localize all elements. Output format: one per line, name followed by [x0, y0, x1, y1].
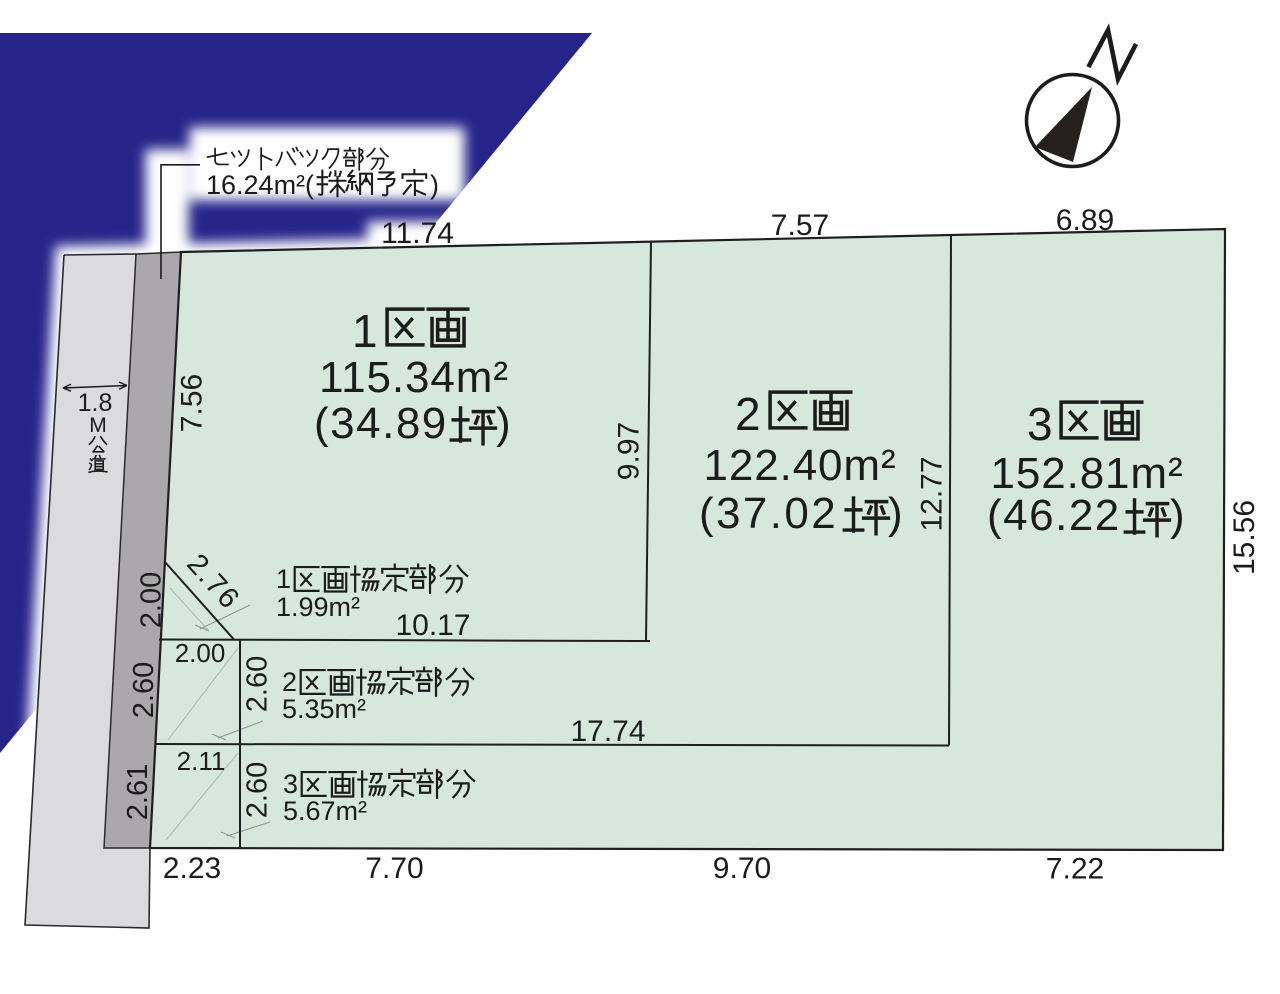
svg-text:3: 3: [283, 769, 298, 799]
svg-text:7.56: 7.56: [176, 374, 209, 432]
svg-text:2.60: 2.60: [242, 762, 274, 818]
svg-text:1.99m²: 1.99m²: [276, 592, 360, 622]
svg-text:7.22: 7.22: [1046, 853, 1104, 886]
svg-text:2: 2: [282, 667, 297, 697]
svg-text:2.60: 2.60: [128, 662, 160, 718]
svg-text:6.89: 6.89: [1056, 204, 1114, 237]
svg-text:2: 2: [735, 388, 761, 440]
svg-text:(37.02: (37.02: [699, 489, 838, 538]
svg-text:1: 1: [276, 564, 291, 594]
svg-text:1: 1: [352, 305, 378, 357]
svg-text:(46.22: (46.22: [987, 491, 1121, 540]
svg-text:17.74: 17.74: [570, 715, 645, 748]
svg-text:2.00: 2.00: [136, 572, 168, 628]
svg-text:7.57: 7.57: [771, 209, 829, 242]
svg-text:): ): [888, 489, 903, 538]
svg-text:): ): [1170, 491, 1185, 540]
svg-text:11.74: 11.74: [381, 217, 454, 250]
svg-text:2.00: 2.00: [175, 638, 226, 668]
svg-text:3: 3: [1027, 398, 1053, 450]
svg-text:2.11: 2.11: [177, 746, 226, 776]
svg-text:2.23: 2.23: [163, 852, 221, 885]
svg-text:115.34m²: 115.34m²: [319, 353, 509, 402]
svg-text:): ): [430, 170, 439, 200]
svg-text:7.70: 7.70: [365, 852, 423, 885]
svg-text:16.24m²(: 16.24m²(: [206, 170, 314, 200]
svg-text:2.60: 2.60: [242, 656, 274, 712]
svg-text:122.40m²: 122.40m²: [703, 441, 896, 490]
svg-text:M: M: [89, 414, 107, 437]
svg-text:5.67m²: 5.67m²: [283, 796, 367, 826]
svg-text:1.8: 1.8: [78, 389, 113, 417]
svg-text:2.61: 2.61: [122, 764, 154, 820]
svg-text:10.17: 10.17: [395, 609, 470, 642]
svg-text:(34.89: (34.89: [314, 399, 448, 448]
svg-text:9.97: 9.97: [613, 422, 646, 480]
svg-text:5.35m²: 5.35m²: [282, 694, 366, 724]
svg-text:15.56: 15.56: [1228, 500, 1261, 575]
svg-text:12.77: 12.77: [916, 456, 949, 531]
svg-text:): ): [496, 399, 511, 448]
svg-text:9.70: 9.70: [713, 852, 771, 885]
